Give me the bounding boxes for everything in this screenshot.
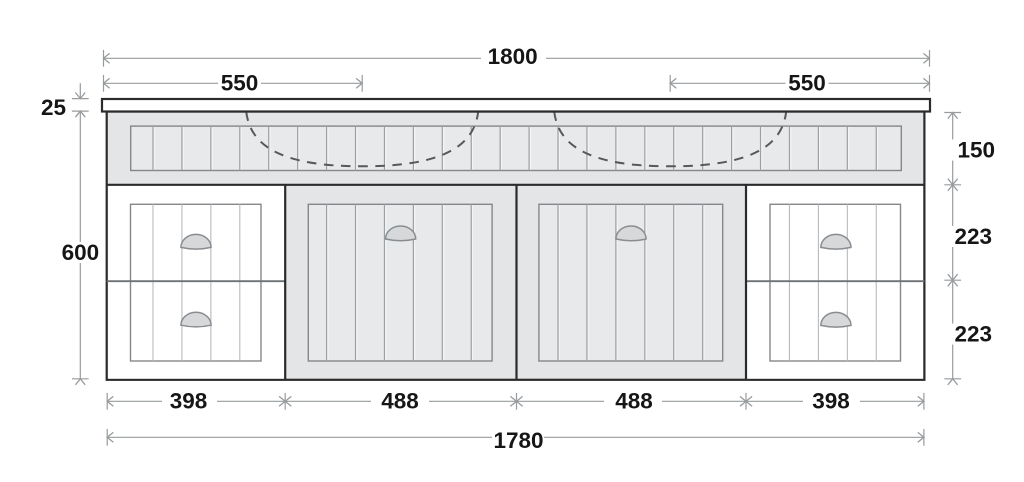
svg-text:1780: 1780 (493, 428, 543, 453)
svg-text:600: 600 (62, 240, 100, 265)
svg-text:150: 150 (958, 138, 996, 163)
svg-text:223: 223 (955, 322, 993, 347)
svg-text:550: 550 (221, 71, 259, 96)
svg-text:398: 398 (170, 388, 208, 413)
svg-text:550: 550 (788, 71, 826, 96)
svg-text:488: 488 (615, 388, 653, 413)
svg-text:398: 398 (812, 388, 850, 413)
svg-text:1800: 1800 (488, 44, 538, 69)
svg-text:488: 488 (381, 388, 419, 413)
svg-text:223: 223 (955, 224, 993, 249)
svg-text:25: 25 (41, 95, 66, 120)
